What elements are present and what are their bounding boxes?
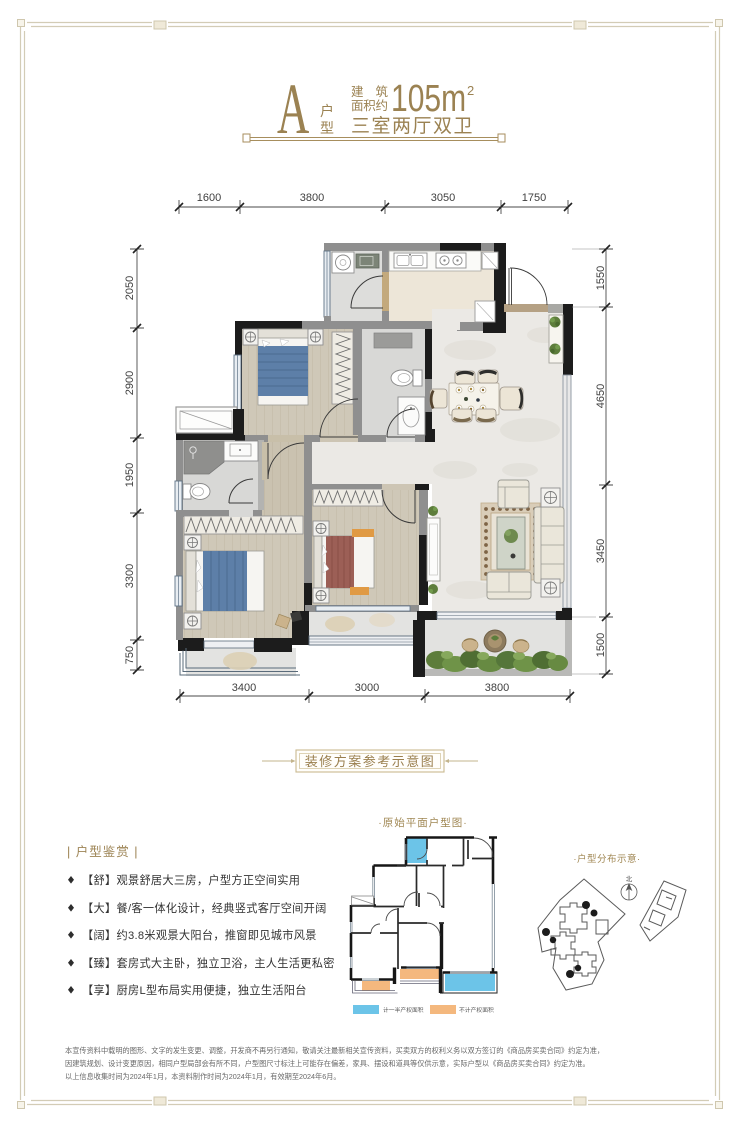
svg-text:3000: 3000 <box>355 682 379 694</box>
svg-text:【享】厨房L型布局实用便捷，独立生活阳台: 【享】厨房L型布局实用便捷，独立生活阳台 <box>82 983 307 997</box>
svg-text:105m: 105m <box>391 78 466 120</box>
svg-text:750: 750 <box>124 646 136 664</box>
svg-text:北: 北 <box>626 875 633 883</box>
svg-text:3450: 3450 <box>595 539 607 563</box>
svg-text:2050: 2050 <box>124 276 136 300</box>
svg-text:3050: 3050 <box>431 192 455 204</box>
svg-text:4650: 4650 <box>595 384 607 408</box>
svg-text:2: 2 <box>467 83 474 98</box>
svg-text:·原始平面户型图·: ·原始平面户型图· <box>378 816 468 829</box>
svg-text:型: 型 <box>320 120 334 136</box>
svg-text:1550: 1550 <box>595 266 607 290</box>
svg-text:3300: 3300 <box>124 564 136 588</box>
svg-text:3800: 3800 <box>300 192 324 204</box>
svg-text:2900: 2900 <box>124 371 136 395</box>
svg-text:3400: 3400 <box>232 682 256 694</box>
svg-text:装修方案参考示意图: 装修方案参考示意图 <box>305 754 436 769</box>
svg-text:以上信息收集时间为2024年1月，本资料制作时间为2024年: 以上信息收集时间为2024年1月，本资料制作时间为2024年1月，有效期至202… <box>65 1072 341 1081</box>
svg-text:三室两厅双卫: 三室两厅双卫 <box>351 115 474 137</box>
svg-text:1750: 1750 <box>522 192 546 204</box>
svg-text:·户型分布示意·: ·户型分布示意· <box>573 853 640 865</box>
svg-text:3800: 3800 <box>485 682 509 694</box>
svg-text:1600: 1600 <box>197 192 221 204</box>
svg-text:计一半产权面积: 计一半产权面积 <box>383 1006 424 1014</box>
svg-text:【大】餐/客一体化设计，经典竖式客厅空间开阔: 【大】餐/客一体化设计，经典竖式客厅空间开阔 <box>82 901 327 915</box>
svg-text:面积约: 面积约 <box>351 98 388 113</box>
svg-text:本宣传资料中载明的图形、文字的发生变更、调整，开发商不再另行: 本宣传资料中载明的图形、文字的发生变更、调整，开发商不再另行通知，敬请关注最新相… <box>65 1046 604 1055</box>
svg-text:| 户型鉴赏 |: | 户型鉴赏 | <box>67 844 138 859</box>
svg-text:不计产权面积: 不计产权面积 <box>459 1006 494 1014</box>
svg-text:【臻】套房式大主卧，独立卫浴，主人生活更私密: 【臻】套房式大主卧，独立卫浴，主人生活更私密 <box>82 956 335 970</box>
svg-text:因建筑规划、设计变更原因，相同户型局部会有所不同，户型图尺寸: 因建筑规划、设计变更原因，相同户型局部会有所不同，户型图尺寸标注上可能存在偏差，… <box>65 1059 590 1068</box>
svg-text:【舒】观景舒居大三房，户型方正空间实用: 【舒】观景舒居大三房，户型方正空间实用 <box>82 873 300 887</box>
svg-text:【阔】约3.8米观景大阳台，推窗即见城市风景: 【阔】约3.8米观景大阳台，推窗即见城市风景 <box>82 928 317 942</box>
svg-text:A: A <box>277 69 309 148</box>
svg-text:1950: 1950 <box>124 463 136 487</box>
svg-text:1500: 1500 <box>595 633 607 657</box>
svg-text:户: 户 <box>320 103 334 119</box>
